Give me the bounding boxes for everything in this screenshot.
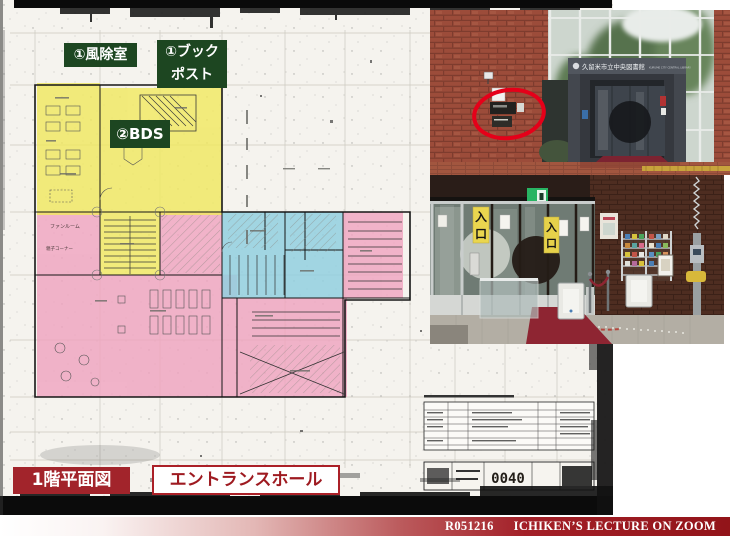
callout-book-post: ①ブック ポスト bbox=[157, 40, 227, 88]
callout-book-post-line1: ①ブック bbox=[157, 41, 227, 64]
door-circle-sign bbox=[609, 101, 651, 143]
callout-book-post-line2: ポスト bbox=[157, 64, 227, 87]
library-sign-text: 久留米市立中央図書館 bbox=[582, 62, 645, 71]
entrance-portal: 久留米市立中央図書館 KURUME CITY CENTRAL LIBRARY bbox=[568, 58, 691, 162]
yellow-handle bbox=[686, 271, 706, 282]
entrance-sign-vertical-1: 入 口 bbox=[473, 207, 489, 243]
photo-entrance-hall-interior: 入 口 入 口 bbox=[430, 175, 724, 344]
forecourt-ground bbox=[430, 162, 730, 175]
callout-bds-label: ②BDS bbox=[116, 125, 163, 143]
entrance-sign1-char-top: 入 bbox=[475, 210, 487, 224]
wall-posters bbox=[600, 213, 618, 239]
photo-library-exterior: 久留米市立中央図書館 KURUME CITY CENTRAL LIBRARY bbox=[430, 10, 730, 175]
entrance-carpet bbox=[596, 156, 668, 162]
brick-column bbox=[714, 10, 730, 162]
entrance-sign2-char-top: 入 bbox=[546, 221, 557, 234]
library-sign-subtext: KURUME CITY CENTRAL LIBRARY bbox=[649, 66, 691, 70]
footer-title: ICHIKEN’S LECTURE ON ZOOM bbox=[514, 519, 716, 533]
room-label-fan-room: ファンルーム bbox=[50, 224, 80, 230]
footer-code: R051216 bbox=[445, 519, 494, 533]
room-label-kids-corner: 親子コーナー bbox=[46, 245, 73, 252]
callout-windbreak-room: ①風除室 bbox=[64, 43, 137, 67]
footer-bar: R051216ICHIKEN’S LECTURE ON ZOOM bbox=[0, 517, 730, 536]
brochure-racks bbox=[622, 231, 673, 281]
entrance-sign-vertical-2: 入 口 bbox=[544, 217, 559, 253]
slide-canvas: ファンルーム 親子コーナー bbox=[0, 0, 730, 548]
title-block-stamp-strip: 0040 bbox=[424, 462, 594, 490]
caption-plan-title: 1階平面図 bbox=[13, 467, 130, 494]
callout-bds: ②BDS bbox=[110, 120, 170, 148]
title-block-table bbox=[424, 395, 594, 450]
entrance-sign2-char-bottom: 口 bbox=[546, 237, 557, 250]
callout-windbreak-label: ①風除室 bbox=[74, 47, 128, 63]
entrance-sign1-char-bottom: 口 bbox=[475, 227, 487, 241]
library-logo-icon bbox=[573, 63, 579, 69]
stamp-number: 0040 bbox=[491, 471, 525, 487]
caption-entrance-hall: エントランスホール bbox=[152, 465, 340, 495]
